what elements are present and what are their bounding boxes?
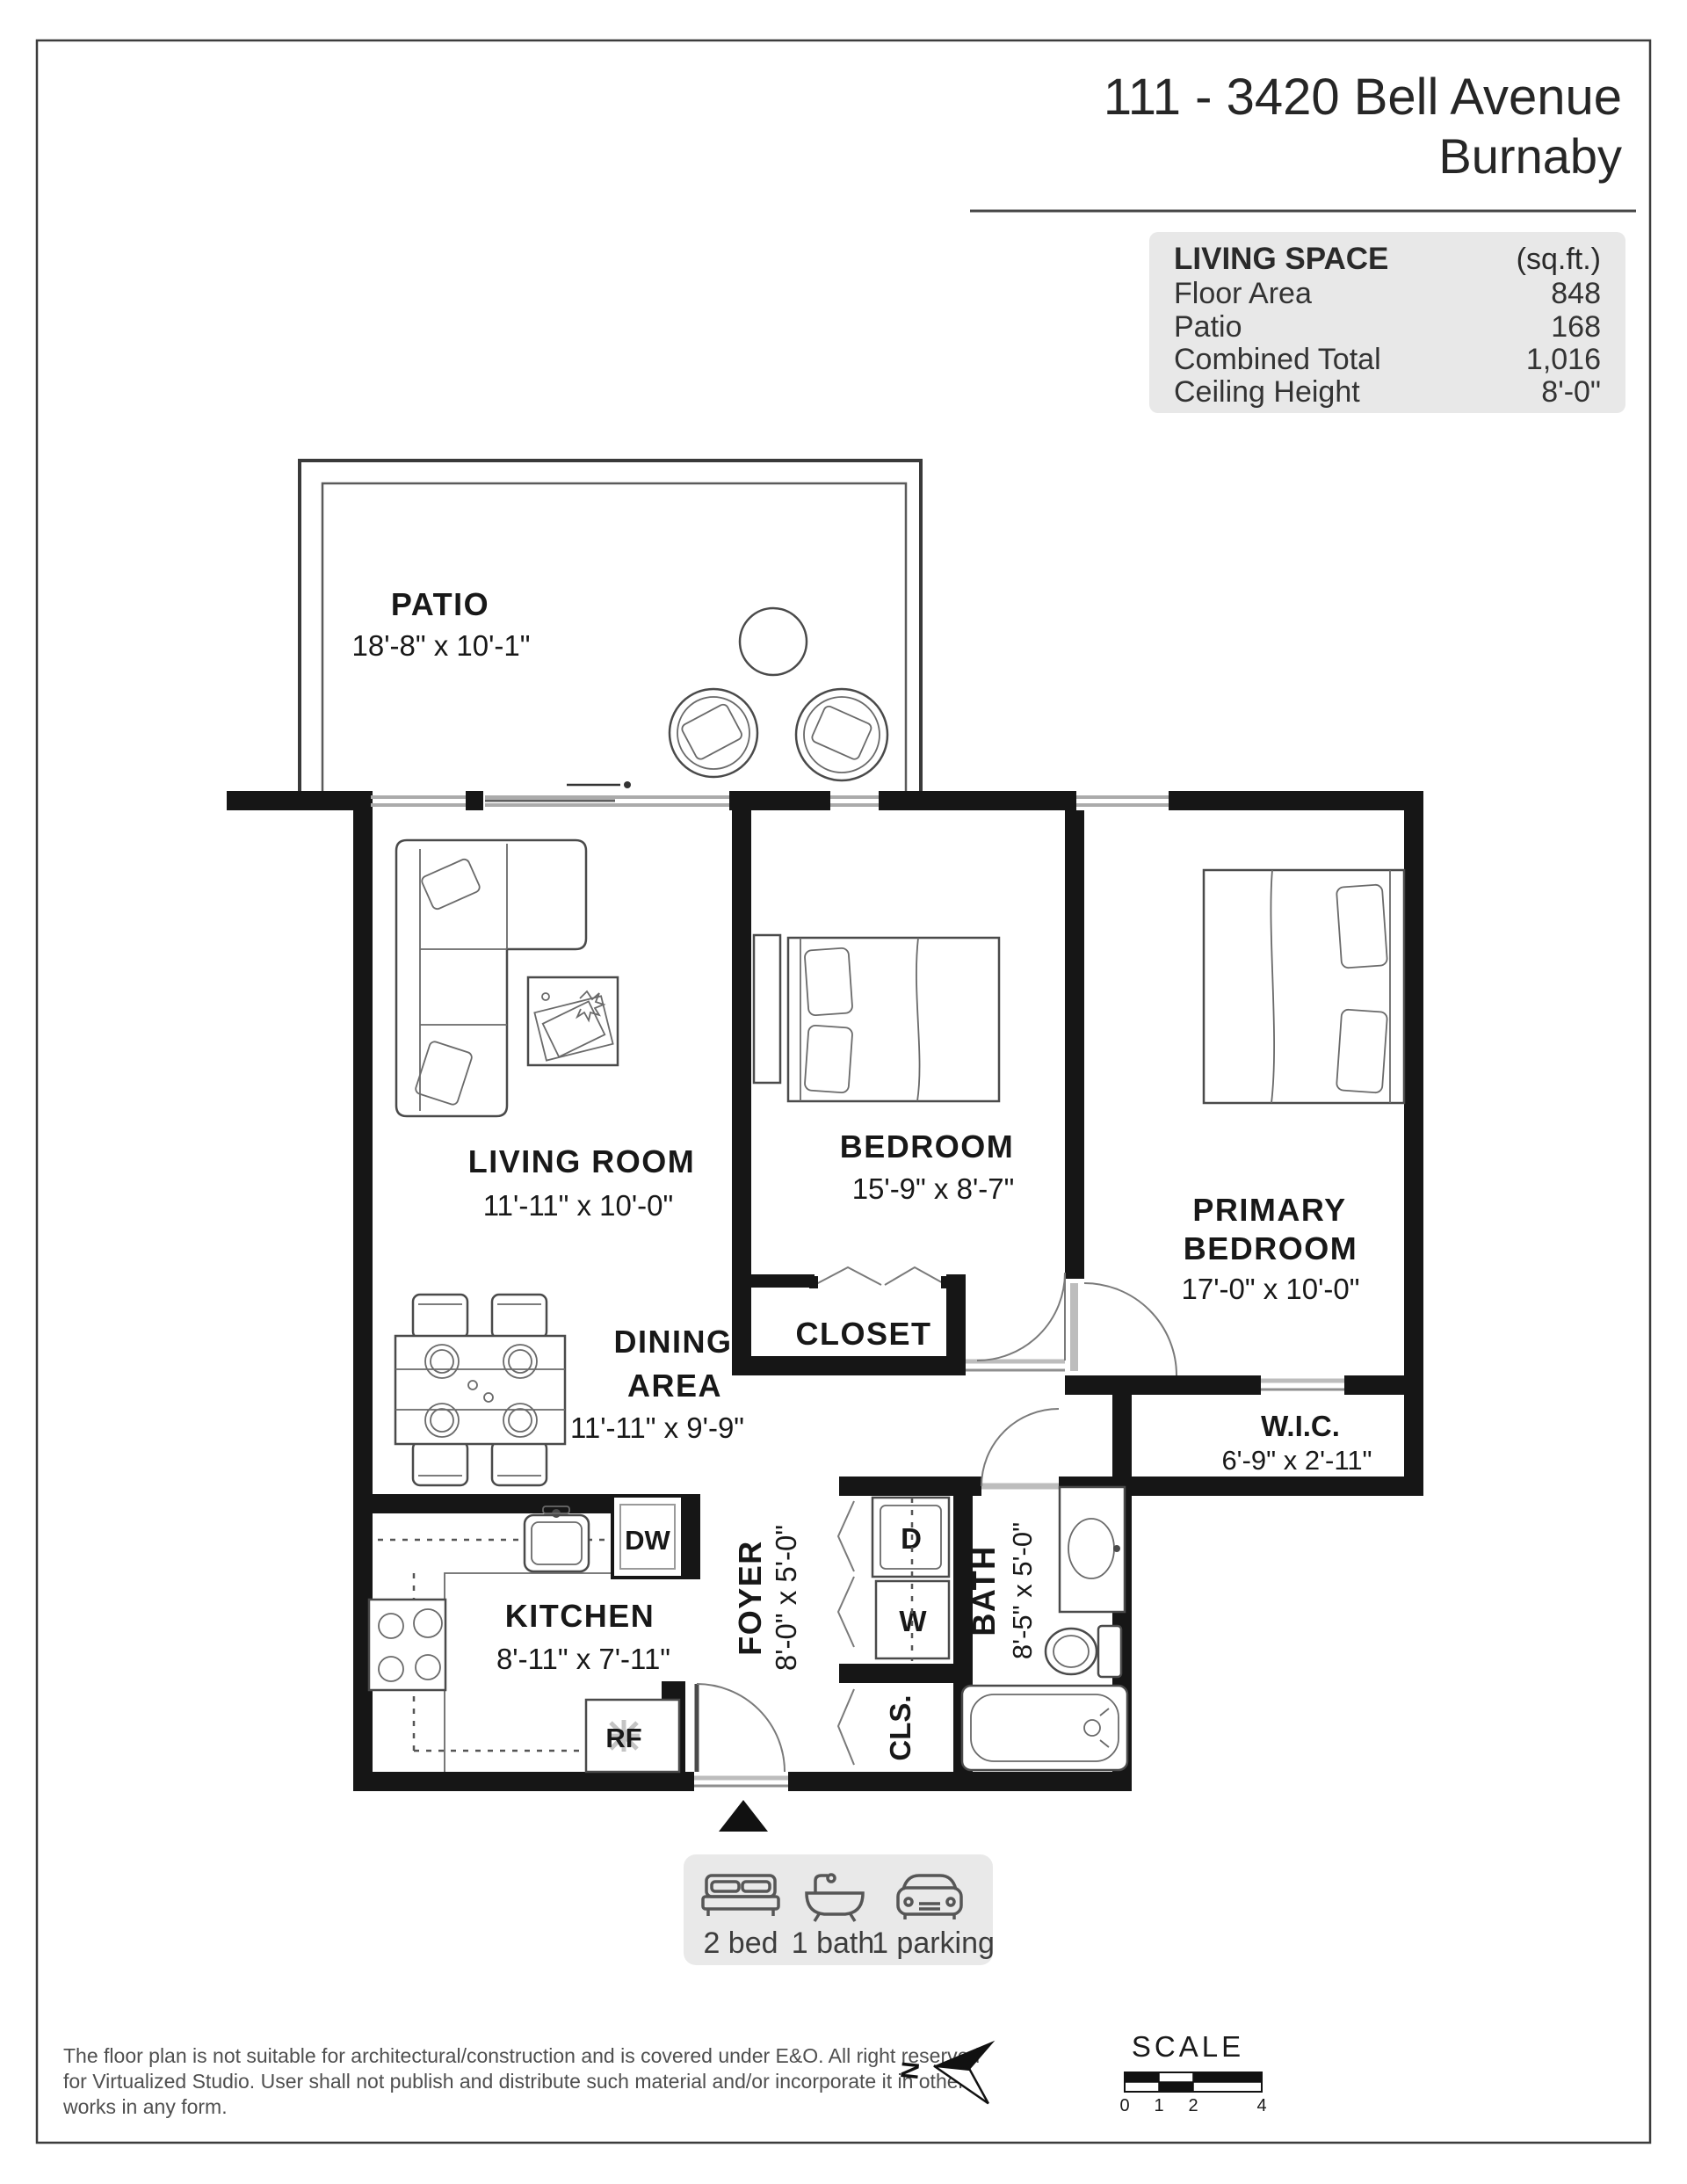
header: 111 - 3420 Bell Avenue Burnaby [970, 69, 1636, 211]
stove [369, 1600, 445, 1690]
primary-bedroom-label-2: BEDROOM [1184, 1230, 1358, 1266]
bath-door [981, 1409, 1059, 1486]
living-room-dims: 11'-11" x 10'-0" [483, 1189, 673, 1222]
kitchen-label: KITCHEN [505, 1598, 655, 1634]
scale-tick: 1 [1154, 2096, 1163, 2115]
dishwasher-label: DW [625, 1525, 670, 1556]
scale-tick: 0 [1119, 2096, 1129, 2115]
dining-area-label-2: AREA [627, 1368, 722, 1404]
wic-dims: 6'-9" x 2'-11" [1221, 1445, 1372, 1476]
primary-bedroom-dims: 17'-0" x 10'-0" [1182, 1273, 1360, 1305]
bedroom-dims: 15'-9" x 8'-7" [852, 1172, 1015, 1205]
kitchen-fixtures: RF DW [369, 1496, 683, 1772]
spec-row-value: 848 [1551, 277, 1601, 310]
coffee-table [528, 977, 618, 1065]
dining-chair [492, 1295, 547, 1339]
living-space-panel: LIVING SPACE (sq.ft.) Floor Area 848 Pat… [1149, 232, 1625, 413]
spec-row-label: Patio [1174, 310, 1242, 344]
bed [788, 938, 999, 1101]
page-title: 111 - 3420 Bell Avenue [1104, 69, 1622, 126]
bedroom-door [966, 1273, 1065, 1370]
laundry-closet: D W CLS. [838, 1498, 949, 1765]
bathroom-vanity [1060, 1487, 1125, 1612]
bedroom-furniture [754, 935, 999, 1101]
scale-bar: SCALE 0 1 2 4 [1119, 2030, 1266, 2115]
entry-door [694, 1684, 788, 1832]
bathtub [962, 1686, 1127, 1770]
spec-row-value: 168 [1551, 310, 1601, 344]
patio-chair [796, 689, 887, 780]
living-room-label: LIVING ROOM [468, 1143, 696, 1179]
bedroom-label: BEDROOM [840, 1128, 1015, 1165]
scale-tick: 2 [1188, 2096, 1198, 2115]
dining-chair [413, 1441, 467, 1485]
spec-row-label: Ceiling Height [1174, 375, 1360, 409]
fridge: RF [586, 1700, 679, 1772]
primary-bed [1204, 870, 1404, 1103]
window [830, 797, 879, 805]
legend-bath-label: 1 bath [792, 1926, 875, 1960]
spec-row-label: Combined Total [1174, 343, 1381, 376]
dining-chair [492, 1441, 547, 1485]
page-subtitle: Burnaby [1438, 128, 1622, 184]
closet-doors [809, 1267, 950, 1288]
dining-table [395, 1336, 565, 1444]
disclaimer-line: for Virtualized Studio. User shall not p… [63, 2070, 966, 2093]
foyer-dims: 8'-0" x 5'-0" [770, 1525, 802, 1671]
legend-badge: 2 bed 1 bath 1 parking [684, 1854, 995, 1965]
disclaimer: The floor plan is not suitable for archi… [62, 2044, 980, 2118]
laundry-bifold-doors [838, 1501, 854, 1647]
spec-row-value: 8'-0" [1541, 375, 1601, 409]
entry-arrow [719, 1800, 768, 1832]
window [371, 797, 466, 805]
patio-chair [670, 689, 757, 777]
north-label: N [895, 2060, 924, 2080]
wic-opening [1261, 1381, 1344, 1389]
dining-chair [413, 1295, 467, 1339]
toilet [1046, 1626, 1121, 1677]
window [1076, 797, 1169, 805]
patio-label: PATIO [391, 586, 489, 622]
fridge-label: RF [605, 1723, 641, 1753]
kitchen-sink [525, 1506, 589, 1571]
closet-label: CLOSET [795, 1316, 931, 1352]
kitchen-dims: 8'-11" x 7'-11" [496, 1643, 670, 1675]
disclaimer-line: The floor plan is not suitable for archi… [63, 2044, 980, 2067]
legend-parking-label: 1 parking [872, 1926, 995, 1960]
scale-tick: 4 [1256, 2096, 1266, 2115]
wic-label: W.I.C. [1261, 1410, 1340, 1442]
foyer-label: FOYER [732, 1540, 768, 1656]
cls-bifold-door [838, 1689, 854, 1765]
floorplan-page: 111 - 3420 Bell Avenue Burnaby LIVING SP… [0, 0, 1687, 2184]
primary-bedroom-label-1: PRIMARY [1192, 1192, 1346, 1228]
bath-dims: 8'-5" x 5'-0" [1007, 1522, 1038, 1659]
dining-area-label-1: DINING [614, 1324, 733, 1360]
bath-label: BATH [966, 1545, 1002, 1636]
patio-dims: 18'-8" x 10'-1" [352, 629, 531, 662]
bedroom-shelf [754, 935, 780, 1083]
cls-label: CLS. [884, 1694, 916, 1760]
sliding-door [485, 781, 729, 805]
scale-title: SCALE [1132, 2030, 1244, 2063]
legend-bed-label: 2 bed [703, 1926, 778, 1960]
living-room-furniture [396, 840, 618, 1116]
dining-area-dims: 11'-11" x 9'-9" [570, 1411, 744, 1444]
spec-row-value: 1,016 [1526, 343, 1601, 376]
washer-label: W [899, 1605, 927, 1637]
dishwasher: DW [612, 1496, 683, 1578]
patio-furniture [670, 608, 887, 780]
spec-row-label: Floor Area [1174, 277, 1312, 310]
patio-table [740, 608, 807, 675]
dining-set [395, 1295, 565, 1485]
primary-bedroom-door [1070, 1283, 1177, 1375]
living-space-unit: (sq.ft.) [1517, 243, 1601, 276]
disclaimer-line: works in any form. [62, 2095, 228, 2118]
dryer: D [872, 1498, 949, 1577]
living-space-title: LIVING SPACE [1174, 242, 1388, 276]
floorplan-canvas: 111 - 3420 Bell Avenue Burnaby LIVING SP… [0, 0, 1687, 2184]
